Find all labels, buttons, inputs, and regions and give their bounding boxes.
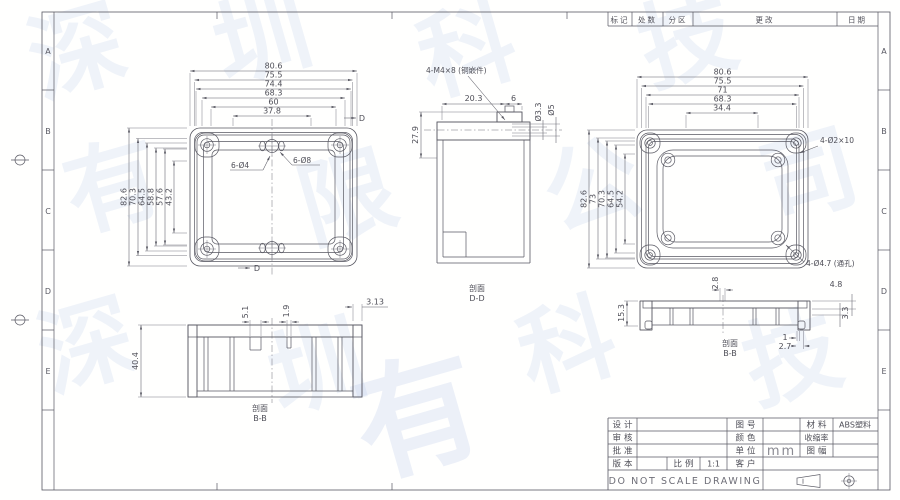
- dim-label: 15.3: [617, 304, 626, 322]
- zone-letter: A: [881, 47, 887, 56]
- callout-through-holes: 4-Ø4.7 (通孔): [806, 258, 855, 268]
- dim-label: 73: [589, 194, 598, 204]
- dim-label: 2.7: [779, 342, 792, 351]
- dim-label: 3.13: [366, 298, 384, 307]
- section-mark-d: D: [254, 264, 260, 273]
- drawing-sheet: 深 圳 科 技 有 限 公 司 深 圳 科 技 有: [0, 0, 900, 500]
- unit-value: mm: [767, 444, 796, 459]
- zone-letter: B: [45, 127, 51, 136]
- zone-letter: B: [881, 127, 887, 136]
- dim-label: 6: [511, 94, 516, 103]
- projection-symbol: [797, 473, 857, 489]
- dim-label: 64.5: [138, 188, 147, 206]
- sheet-label: 图幅: [806, 446, 829, 457]
- unit-label: 单位: [735, 446, 758, 457]
- callout-6-d8: 6-Ø8: [293, 156, 311, 165]
- version-label: 版本: [612, 459, 635, 470]
- dim-label: 80.6: [714, 68, 732, 77]
- section-title: 剖面: [469, 283, 485, 293]
- section-name: D-D: [469, 294, 484, 303]
- screw-recesses: [661, 153, 785, 245]
- view-lid-top: 4-Ø2×10 4-Ø4.7 (通孔) 80.6 75.5 71 68.3: [580, 68, 855, 269]
- revision-col-mark: 标记: [611, 15, 630, 25]
- zone-letter: A: [45, 47, 51, 56]
- zone-letter: E: [881, 367, 886, 376]
- dim-label: 37.8: [263, 107, 281, 116]
- dim-label: 1.9: [282, 305, 291, 318]
- revision-col-count: 处数: [638, 15, 657, 25]
- approve-label: 批准: [612, 446, 635, 457]
- section-mark-d: D: [359, 114, 365, 123]
- dim-label: 75.5: [265, 71, 283, 80]
- material-label: 材料: [806, 420, 829, 431]
- revision-col-zone: 分区: [669, 16, 688, 25]
- dim-label: 43.2: [165, 188, 174, 206]
- dim-label: 58.8: [147, 188, 156, 206]
- dim-label: 68.3: [265, 89, 283, 98]
- dim-label: 80.6: [265, 62, 283, 71]
- revision-col-change: 更改: [756, 15, 775, 25]
- dim-label: 2.8: [711, 277, 720, 290]
- dim-chain-top: 80.6 75.5 74.4 68.3 60 37.8: [190, 62, 357, 127]
- scale-value: 1:1: [707, 460, 720, 469]
- view-base-section: 5.1 1.9 3.13 40.4 剖面 B-B: [131, 298, 388, 424]
- dim-label: 5.1: [241, 306, 250, 319]
- callout-inserts: 4-M4×8 (铜嵌件): [426, 65, 487, 75]
- do-not-scale-note: DO NOT SCALE DRAWING: [609, 476, 762, 487]
- revision-col-date: 日期: [848, 16, 867, 25]
- dim-label: Ø3.3: [533, 102, 543, 121]
- dim-label: 82.6: [120, 188, 129, 206]
- dim-label: 74.4: [265, 80, 283, 89]
- scale-label: 比例: [673, 459, 696, 470]
- dim-label: 71: [717, 86, 727, 95]
- section-title: 剖面: [252, 403, 268, 413]
- view-lid-section: 2.8 4.8 3.3 15.3 1 2.7 剖面 B-B: [617, 277, 856, 358]
- dim-chain-left: 82.6 70.3 64.5 58.8 57.6 43.2: [120, 128, 188, 266]
- dim-chain-left: 82.6 73 70.3 64.5 54.2: [580, 130, 636, 268]
- zone-letter: C: [45, 207, 51, 216]
- dim-label: 20.3: [465, 94, 483, 103]
- material-value: ABS塑料: [839, 420, 871, 430]
- view-section-dd: 4-M4×8 (铜嵌件) 20.3 6 27.9 Ø3.3 Ø5 剖面 D-D: [411, 65, 562, 303]
- dim-label: 64.5: [607, 190, 616, 208]
- color-label: 颜色: [735, 433, 758, 444]
- drawing-canvas: A B C D E A B C D E 标记 处数: [0, 0, 900, 500]
- dim-label: 40.4: [131, 352, 140, 370]
- dim-label: 70.3: [598, 190, 607, 208]
- title-block: 设计 图号 材料 ABS塑料 审核 颜色 收缩率 批准 单位 mm 图幅 版本 …: [608, 418, 878, 490]
- dim-label: 34.4: [713, 104, 731, 113]
- dim-chain-top: 80.6 75.5 71 68.3 34.4: [637, 68, 808, 129]
- zone-letter: D: [45, 287, 51, 296]
- dim-label: 60: [268, 98, 278, 107]
- shrinkage-label: 收缩率: [805, 433, 829, 443]
- dim-label: 1: [782, 333, 787, 342]
- dim-label: 4.8: [830, 280, 843, 289]
- revision-table: 标记 处数 分区 更改 日期: [608, 12, 878, 26]
- dim-label: 70.3: [129, 188, 138, 206]
- dim-label: 54.2: [616, 190, 625, 208]
- dim-label: 3.3: [841, 307, 850, 320]
- check-label: 审核: [612, 433, 635, 444]
- centering-marks: [11, 155, 29, 325]
- zone-letter: E: [45, 367, 50, 376]
- section-name: B-B: [723, 349, 737, 358]
- design-label: 设计: [612, 420, 635, 431]
- customer-label: 客户: [735, 459, 758, 470]
- dim-label: 57.6: [156, 188, 165, 206]
- callout-pins: 4-Ø2×10: [820, 136, 854, 145]
- view-base-top: 6-Ø4 6-Ø8 D D: [120, 62, 366, 276]
- dim-label: Ø5: [546, 104, 556, 115]
- dim-label: 68.3: [714, 95, 732, 104]
- drawing-no-label: 图号: [735, 421, 758, 431]
- dim-label: 27.9: [411, 126, 420, 144]
- zone-letter: C: [881, 207, 887, 216]
- dim-label: 75.5: [714, 77, 732, 86]
- callout-6-d4: 6-Ø4: [231, 161, 249, 170]
- zone-letter: D: [881, 287, 887, 296]
- dim-label: 82.6: [580, 190, 589, 208]
- section-name: B-B: [253, 414, 267, 423]
- section-title: 剖面: [722, 338, 738, 348]
